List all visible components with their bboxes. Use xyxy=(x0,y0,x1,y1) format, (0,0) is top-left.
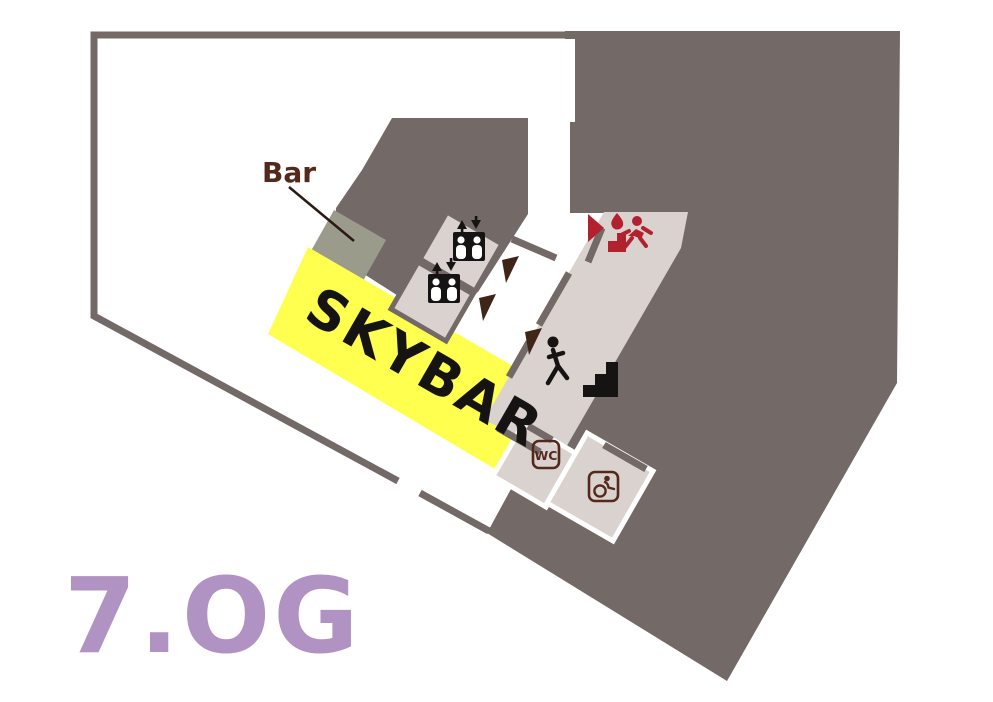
elevator-person-1-body xyxy=(431,287,441,301)
elevator-person-2-head xyxy=(448,278,455,285)
elevator-person-1-head xyxy=(432,278,439,285)
stairs-person-head xyxy=(548,337,559,348)
top-notch xyxy=(565,39,575,122)
floor-label: 7.OG xyxy=(64,555,362,677)
corridor xyxy=(528,122,570,213)
down-arrow-stem xyxy=(450,258,453,262)
elevator-person-2-body xyxy=(447,287,457,301)
up-arrow-stem xyxy=(436,270,439,274)
elevator-person-1-head xyxy=(457,236,464,243)
floor-plan-canvas: WC Bar SKYBAR 7.OG xyxy=(0,0,993,702)
wc-sign-label: WC xyxy=(535,448,558,463)
elevator-person-1-body xyxy=(456,245,466,259)
elevator-person-2-head xyxy=(473,236,480,243)
wheelchair-person-head xyxy=(604,476,610,482)
bar-label: Bar xyxy=(262,156,316,189)
elevator-person-2-body xyxy=(472,245,482,259)
up-arrow-stem xyxy=(461,228,464,232)
exit-person-head xyxy=(632,216,642,226)
floor-plan-svg: WC Bar SKYBAR 7.OG xyxy=(0,0,993,702)
down-arrow-stem xyxy=(475,216,478,220)
